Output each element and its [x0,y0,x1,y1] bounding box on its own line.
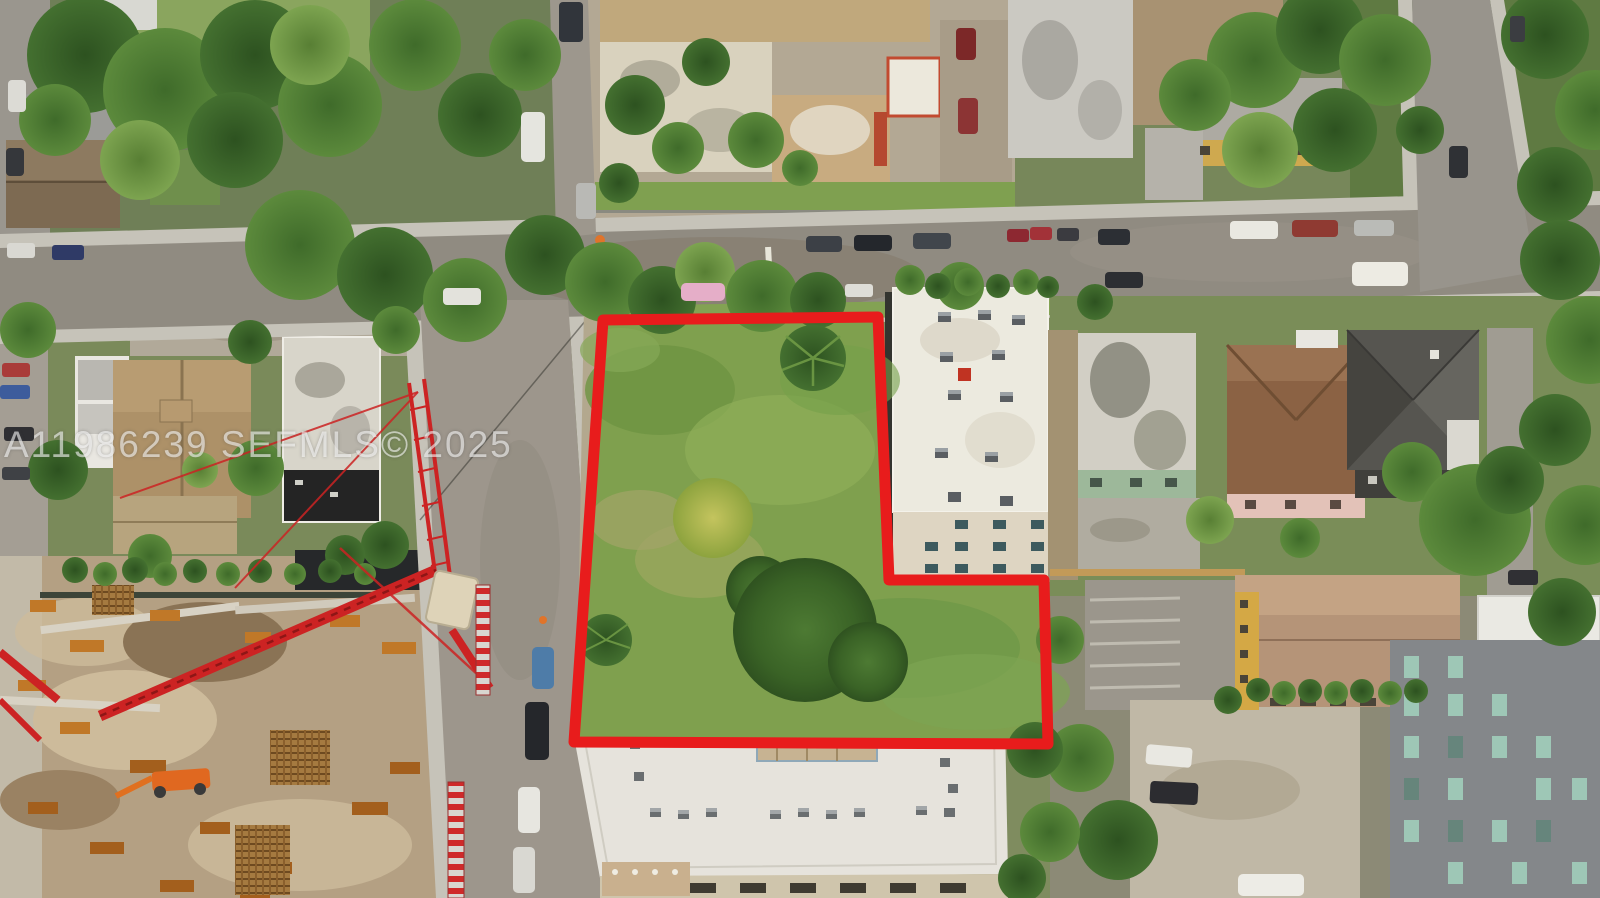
white-pickup [1145,744,1193,768]
crane-counterweight [425,570,479,630]
white-apartment-building [885,288,1048,585]
aerial-photo: A11986239 SEFMLS© 2025 [0,0,1600,898]
white-van [1238,874,1304,896]
aerial-photo-canvas [0,0,1600,898]
pink-house [1227,330,1365,518]
blue-car [532,647,554,689]
palm-tree-left [580,614,632,666]
construction-site [0,550,458,898]
palm-tree-top [780,325,846,391]
pink-car [681,283,725,301]
yellow-green-tree [673,478,753,558]
